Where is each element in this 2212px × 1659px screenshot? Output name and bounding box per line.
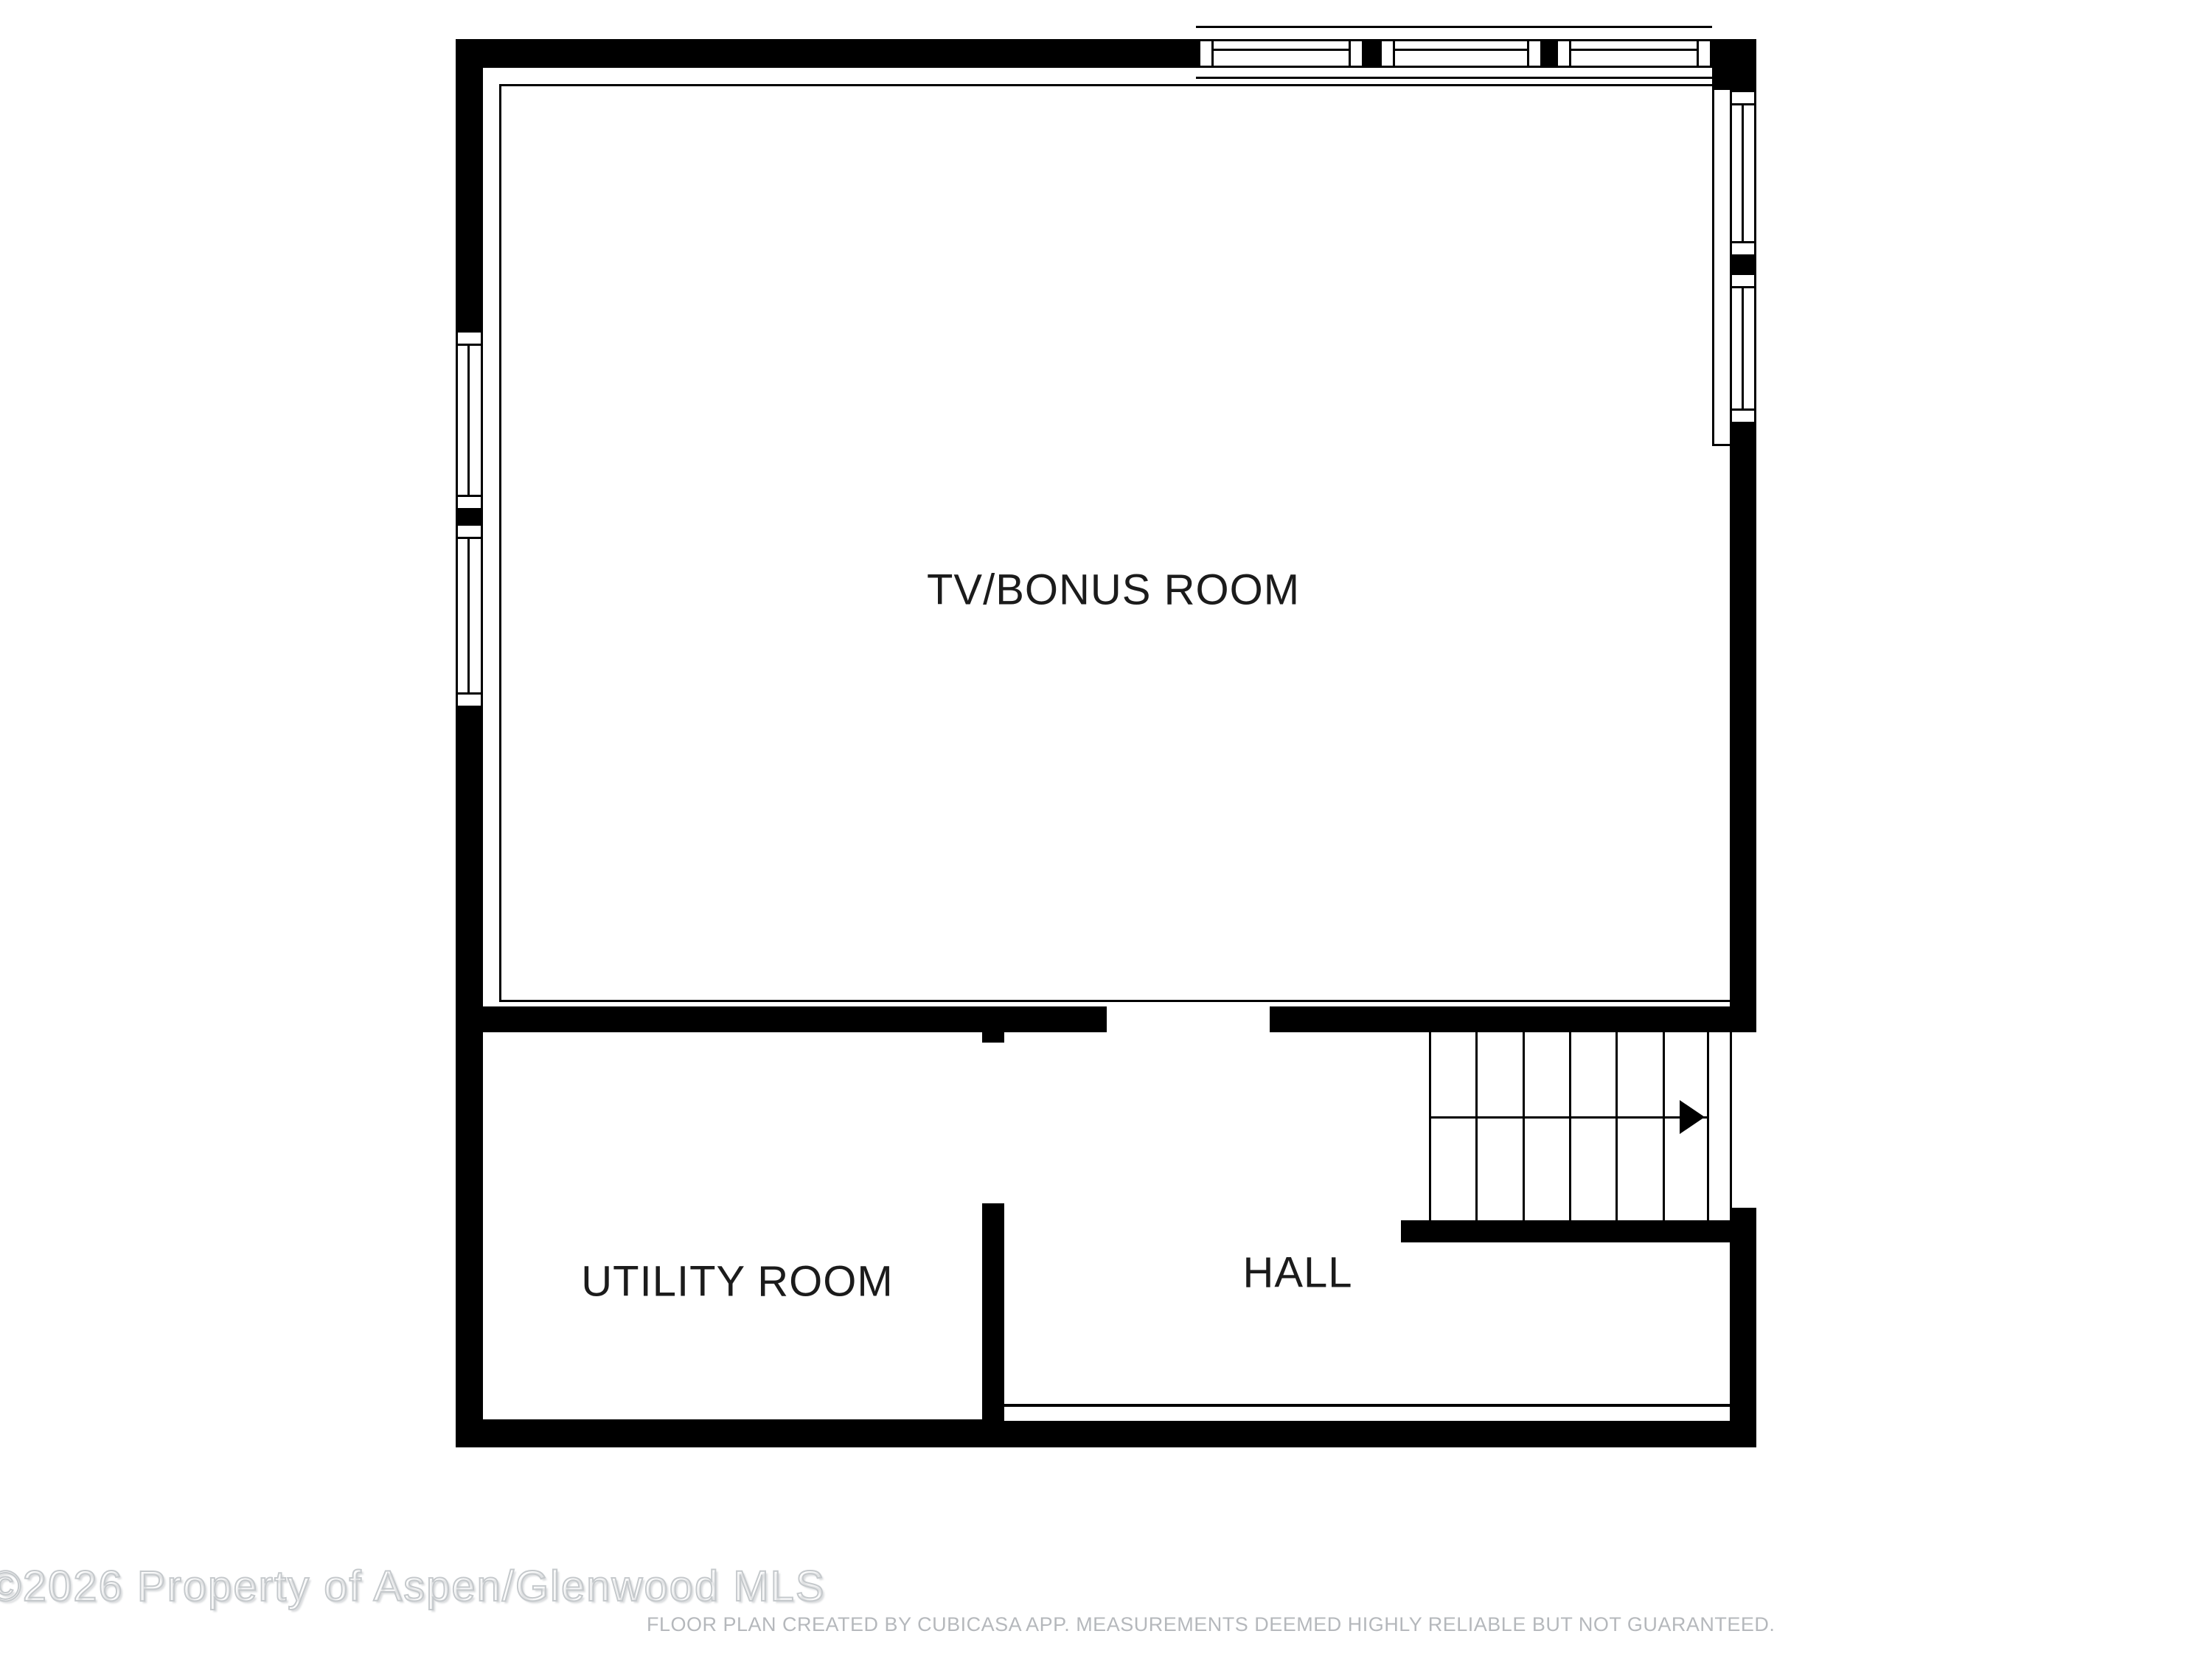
room-label-tv-bonus-room: TV/BONUS ROOM	[927, 566, 1300, 615]
wall-divider-lower	[982, 1203, 1004, 1447]
stair-tread-line	[1569, 1032, 1571, 1220]
window-right-2	[1730, 273, 1756, 424]
room-outline-bottom	[499, 1000, 1732, 1002]
window-frame	[1697, 41, 1699, 66]
wall-top	[456, 39, 1198, 68]
stair-tread-line	[1707, 1032, 1709, 1220]
window-mullion	[467, 539, 470, 692]
window-top-2	[1380, 39, 1543, 68]
stair-tread-line	[1663, 1032, 1665, 1220]
wall-left-upper	[456, 39, 483, 330]
wall-top-window-gap-2	[1543, 39, 1556, 68]
window-left-1	[456, 330, 483, 510]
wall-divider-stub	[982, 1032, 1004, 1043]
wall-right-middle	[1730, 424, 1756, 1032]
window-mullion	[1742, 288, 1744, 408]
window-sill-line-inner	[1196, 77, 1712, 79]
window-frame	[458, 495, 481, 497]
window-mullion	[1214, 49, 1349, 51]
cubicasa-disclaimer: FLOOR PLAN CREATED BY CUBICASA APP. MEAS…	[647, 1613, 1775, 1636]
window-frame	[1349, 41, 1351, 66]
room-label-utility-room: UTILITY ROOM	[581, 1257, 893, 1307]
stair-tread-line	[1523, 1032, 1525, 1220]
room-outline-right	[1712, 84, 1714, 446]
room-label-hall: HALL	[1242, 1248, 1352, 1298]
wall-right-window-gap	[1730, 257, 1756, 273]
window-mullion	[1571, 49, 1697, 51]
window-mullion	[1742, 105, 1744, 241]
mls-watermark: ©2026 Property of Aspen/Glenwood MLS	[0, 1562, 826, 1611]
window-frame	[1569, 41, 1571, 66]
wall-bottom	[456, 1419, 1756, 1447]
stairs-direction-arrow-icon	[1680, 1100, 1705, 1134]
window-right-1	[1730, 90, 1756, 257]
wall-interior-right-segment	[1270, 1006, 1756, 1032]
window-top-3	[1556, 39, 1712, 68]
window-frame	[1732, 408, 1754, 411]
wall-opening-edge-line	[1730, 1032, 1732, 1209]
stair-tread-line	[1475, 1032, 1478, 1220]
wall-top-window-gap-1	[1364, 39, 1380, 68]
floor-plan: TV/BONUS ROOM UTILITY ROOM HALL	[0, 0, 2212, 1659]
window-frame	[1527, 41, 1529, 66]
room-outline-top	[499, 84, 1714, 86]
wall-corner-block-ne	[1712, 39, 1756, 90]
window-sill-line-outer	[1196, 26, 1712, 28]
stair-tread-line	[1429, 1032, 1431, 1220]
window-frame	[1393, 41, 1395, 66]
wall-interior-left-segment	[456, 1006, 1107, 1032]
window-left-2	[456, 524, 483, 708]
window-mullion	[467, 346, 470, 495]
wall-left-lower	[456, 708, 483, 1447]
stair-tread-line	[1615, 1032, 1618, 1220]
wall-left-window-gap	[456, 510, 483, 524]
stair-mid-line-arrow-shaft	[1429, 1116, 1709, 1119]
window-frame	[1211, 41, 1214, 66]
window-top-1	[1198, 39, 1364, 68]
room-outline-left	[499, 84, 501, 1002]
window-frame	[1732, 241, 1754, 243]
hall-threshold	[1004, 1404, 1730, 1421]
room-outline-right-jog	[1712, 444, 1732, 446]
window-frame	[458, 692, 481, 695]
window-mullion	[1395, 49, 1527, 51]
wall-under-stairs	[1401, 1220, 1756, 1242]
wall-right-lower	[1730, 1208, 1756, 1447]
